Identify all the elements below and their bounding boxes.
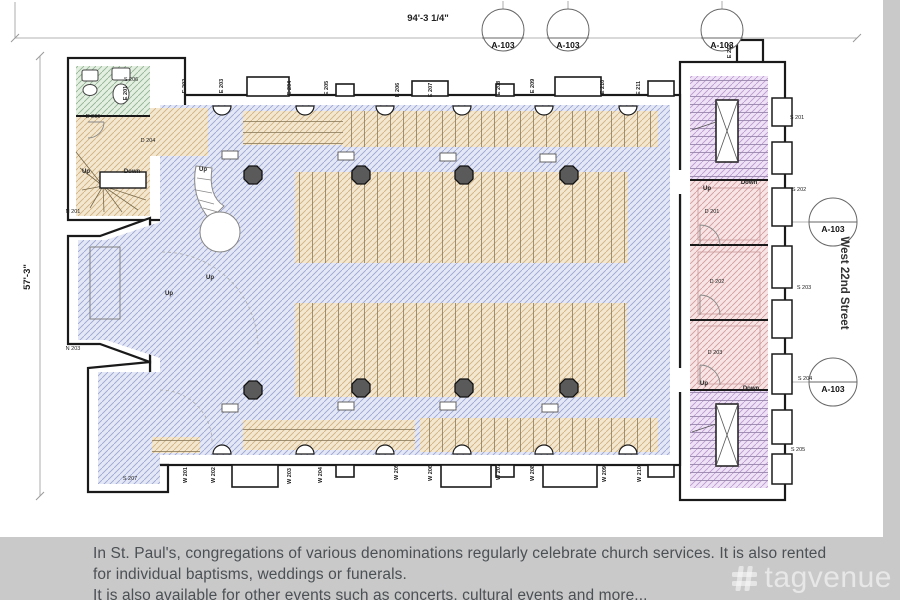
- street-name-label: West 22nd Street: [838, 236, 850, 329]
- direction-label: Up: [703, 186, 711, 192]
- wall-opening-label: W 209: [602, 466, 608, 482]
- room-label: D 204: [141, 138, 156, 144]
- room-label: S 202: [792, 187, 806, 193]
- wall-opening-label: E 201: [123, 86, 129, 100]
- column: [455, 379, 473, 397]
- wall-opening-label: E 211: [636, 81, 642, 95]
- wall-opening-label: E 203: [219, 79, 225, 93]
- direction-label: Up: [700, 381, 708, 387]
- tagvenue-watermark: tagvenue: [731, 561, 892, 595]
- wall-opening-label: E 202: [182, 79, 188, 93]
- wall-opening-label: W 202: [211, 467, 217, 483]
- direction-label: Up: [82, 169, 90, 175]
- sheet-ref-label: A-103: [556, 40, 579, 50]
- sheet-ref-marker: A-103: [809, 358, 857, 406]
- wall-opening-label: E 206: [395, 83, 401, 97]
- sheet-ref-label: A-103: [821, 224, 844, 234]
- sheet-ref-marker: A-103: [701, 1, 743, 51]
- wall-opening-label: E 210: [600, 80, 606, 94]
- floor-finishes: [76, 66, 768, 488]
- column: [455, 166, 473, 184]
- room-label: S 206: [124, 77, 138, 83]
- wall-opening-label: W 205: [394, 464, 400, 480]
- wall-opening-label: E 208: [496, 81, 502, 95]
- direction-label: Up: [199, 167, 207, 173]
- direction-label: Down: [124, 169, 141, 175]
- wall-opening-label: W 201: [183, 467, 189, 483]
- room-label: N 201: [66, 209, 81, 215]
- direction-label: Up: [206, 275, 214, 281]
- wall-opening-label: W 210: [637, 466, 643, 482]
- floorplan-sheet: A-103A-103A-103A-103A-103 E 201E 202E 20…: [0, 0, 883, 537]
- wall-opening-label: E 205: [324, 81, 330, 95]
- sheet-ref-label: A-103: [491, 40, 514, 50]
- church-floorplan-drawing: A-103A-103A-103A-103A-103 E 201E 202E 20…: [0, 0, 883, 537]
- column: [560, 166, 578, 184]
- room-label: N 203: [66, 346, 81, 352]
- room-label: S 207: [123, 476, 137, 482]
- wall-opening-label: E 212: [727, 44, 733, 58]
- top-dimension-label: 94'-3 1/4": [407, 13, 449, 24]
- room-label: S 205: [791, 447, 805, 453]
- column: [352, 166, 370, 184]
- column: [244, 381, 262, 399]
- wall-opening-label: W 206: [428, 465, 434, 481]
- wing-chimney: [737, 40, 763, 64]
- column: [244, 166, 262, 184]
- room-label: S 201: [790, 115, 804, 121]
- sheet-ref-label: A-103: [821, 384, 844, 394]
- north-wall-pilasters: [247, 77, 674, 96]
- wall-opening-label: W 208: [530, 465, 536, 481]
- wall-opening-label: W 207: [496, 464, 502, 480]
- wall-opening-label: E 207: [428, 83, 434, 97]
- room-label: S 203: [797, 285, 811, 291]
- wall-opening-label: W 204: [318, 466, 324, 483]
- room-label: D 201: [705, 209, 720, 215]
- wall-opening-label: E 204: [287, 80, 293, 95]
- room-label: S 204: [798, 376, 812, 382]
- wall-opening-label: W 203: [287, 468, 293, 484]
- sheet-ref-marker: A-103: [482, 1, 524, 51]
- venue-floorplan-page: A-103A-103A-103A-103A-103 E 201E 202E 20…: [0, 0, 900, 600]
- direction-label: Up: [165, 291, 173, 297]
- direction-label: Down: [743, 386, 760, 392]
- left-dimension-label: 57'-3": [22, 264, 33, 290]
- tagvenue-hash-icon: [731, 565, 758, 592]
- room-label: D 206: [86, 114, 101, 120]
- southwest-floor: [98, 372, 160, 484]
- sheet-ref-marker: A-103: [547, 1, 589, 51]
- wing-rooms-floor: [690, 180, 768, 390]
- northwest-corridor-floor: [150, 108, 208, 156]
- column: [352, 379, 370, 397]
- room-label: D 202: [710, 279, 725, 285]
- direction-label: Down: [741, 180, 758, 186]
- tagvenue-brand-text: tagvenue: [765, 561, 892, 595]
- wall-opening-label: E 209: [530, 79, 536, 93]
- column: [560, 379, 578, 397]
- room-label: D 203: [708, 350, 723, 356]
